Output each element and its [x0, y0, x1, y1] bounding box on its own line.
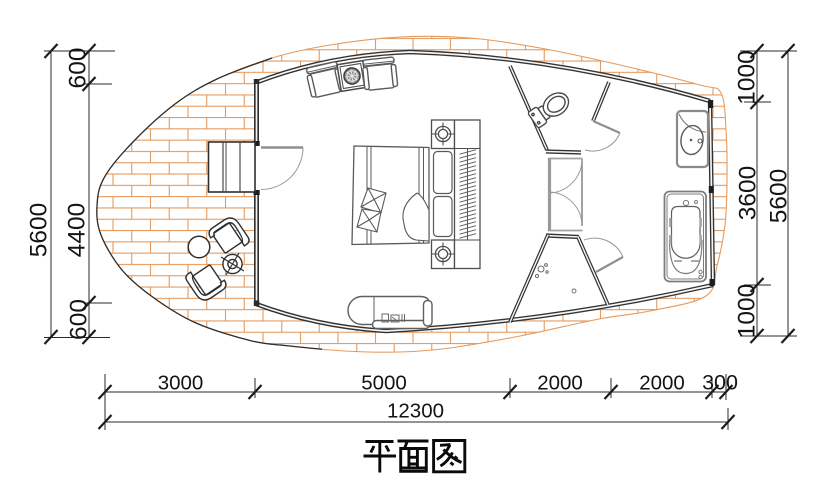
svg-text:3000: 3000	[158, 372, 204, 395]
svg-text:4400: 4400	[64, 203, 91, 258]
svg-text:12300: 12300	[387, 400, 444, 423]
svg-text:5000: 5000	[361, 372, 407, 395]
svg-text:1000: 1000	[734, 284, 761, 339]
svg-text:1000: 1000	[734, 50, 761, 105]
svg-text:600: 600	[66, 299, 93, 340]
svg-text:2000: 2000	[537, 372, 583, 395]
svg-text:5600: 5600	[26, 203, 53, 258]
svg-text:5600: 5600	[766, 169, 793, 224]
svg-text:300: 300	[702, 371, 738, 395]
svg-text:2000: 2000	[639, 372, 685, 395]
svg-text:600: 600	[65, 48, 92, 89]
svg-text:3600: 3600	[735, 166, 762, 221]
